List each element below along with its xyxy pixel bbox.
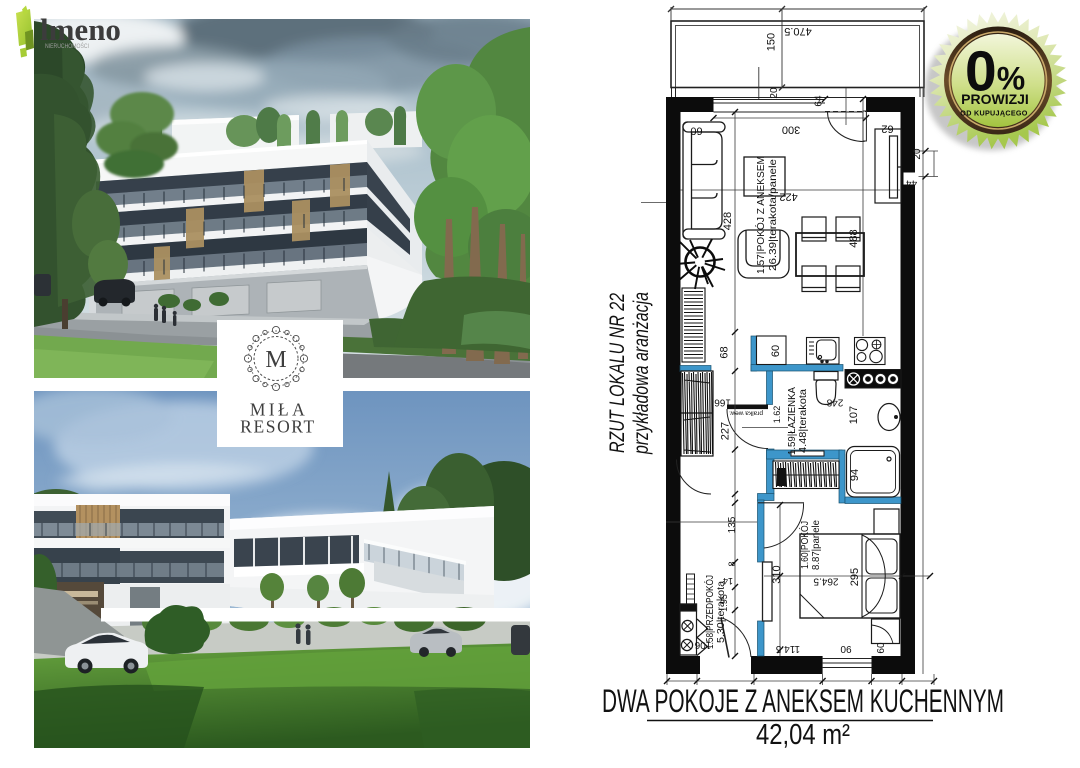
svg-text:NIERUCHOMOŚCI: NIERUCHOMOŚCI [45, 41, 89, 50]
svg-text:60: 60 [876, 642, 887, 654]
svg-text:166: 166 [714, 397, 731, 408]
svg-text:422: 422 [779, 191, 797, 203]
svg-text:1.62: 1.62 [772, 406, 782, 424]
svg-text:64: 64 [814, 95, 825, 107]
svg-text:8: 8 [727, 561, 737, 566]
svg-text:264.5: 264.5 [813, 576, 838, 587]
svg-text:107: 107 [848, 406, 860, 424]
svg-text:M: M [265, 347, 286, 373]
svg-text:4.48|terakota: 4.48|terakota [798, 389, 809, 453]
svg-text:62: 62 [881, 123, 893, 135]
svg-text:RESORT: RESORT [240, 417, 316, 437]
svg-text:106: 106 [694, 639, 711, 650]
svg-text:68: 68 [719, 346, 731, 358]
svg-text:1.57|POKÓJ Z ANEKSEM: 1.57|POKÓJ Z ANEKSEM [754, 156, 767, 274]
svg-text:248: 248 [826, 397, 843, 408]
svg-text:DWA POKOJE Z ANEKSEM KUCHENNYM: DWA POKOJE Z ANEKSEM KUCHENNYM [602, 683, 1004, 719]
svg-text:470.5: 470.5 [784, 25, 812, 37]
svg-text:8.87|panele: 8.87|panele [811, 520, 822, 570]
svg-text:60: 60 [690, 125, 702, 137]
svg-text:310: 310 [771, 565, 783, 583]
svg-text:428: 428 [722, 212, 734, 230]
svg-text:42,04 m²: 42,04 m² [756, 719, 850, 751]
svg-text:488: 488 [848, 229, 860, 247]
svg-text:lmeno: lmeno [40, 12, 121, 47]
svg-text:300: 300 [782, 124, 800, 136]
svg-text:RZUT LOKALU NR 22: RZUT LOKALU NR 22 [606, 293, 629, 453]
svg-text:90: 90 [840, 643, 852, 654]
svg-text:44: 44 [906, 178, 918, 189]
svg-text:20: 20 [769, 87, 780, 99]
svg-text:114.5: 114.5 [775, 643, 800, 654]
svg-text:135: 135 [727, 516, 738, 533]
svg-text:150: 150 [766, 33, 778, 51]
svg-text:OD KUPUJĄCEGO: OD KUPUJĄCEGO [960, 109, 1028, 118]
svg-text:26.39|terakota/panele: 26.39|terakota/panele [768, 158, 779, 271]
svg-text:1.59|ŁAZIENKA: 1.59|ŁAZIENKA [787, 387, 798, 455]
svg-text:5.30|terakota: 5.30|terakota [716, 581, 727, 643]
svg-text:1.58|PRZEDPOKÓJ: 1.58|PRZEDPOKÓJ [703, 575, 716, 649]
svg-text:94: 94 [849, 469, 861, 481]
svg-text:1.60|POKÓJ: 1.60|POKÓJ [798, 521, 811, 569]
svg-text:227: 227 [720, 422, 732, 440]
svg-text:przykładowa aranżacja: przykładowa aranżacja [630, 292, 653, 455]
svg-text:pralka wew.: pralka wew. [729, 410, 763, 417]
svg-text:PROWIZJI: PROWIZJI [961, 91, 1029, 107]
svg-text:60: 60 [770, 345, 782, 357]
svg-text:295: 295 [849, 568, 861, 586]
